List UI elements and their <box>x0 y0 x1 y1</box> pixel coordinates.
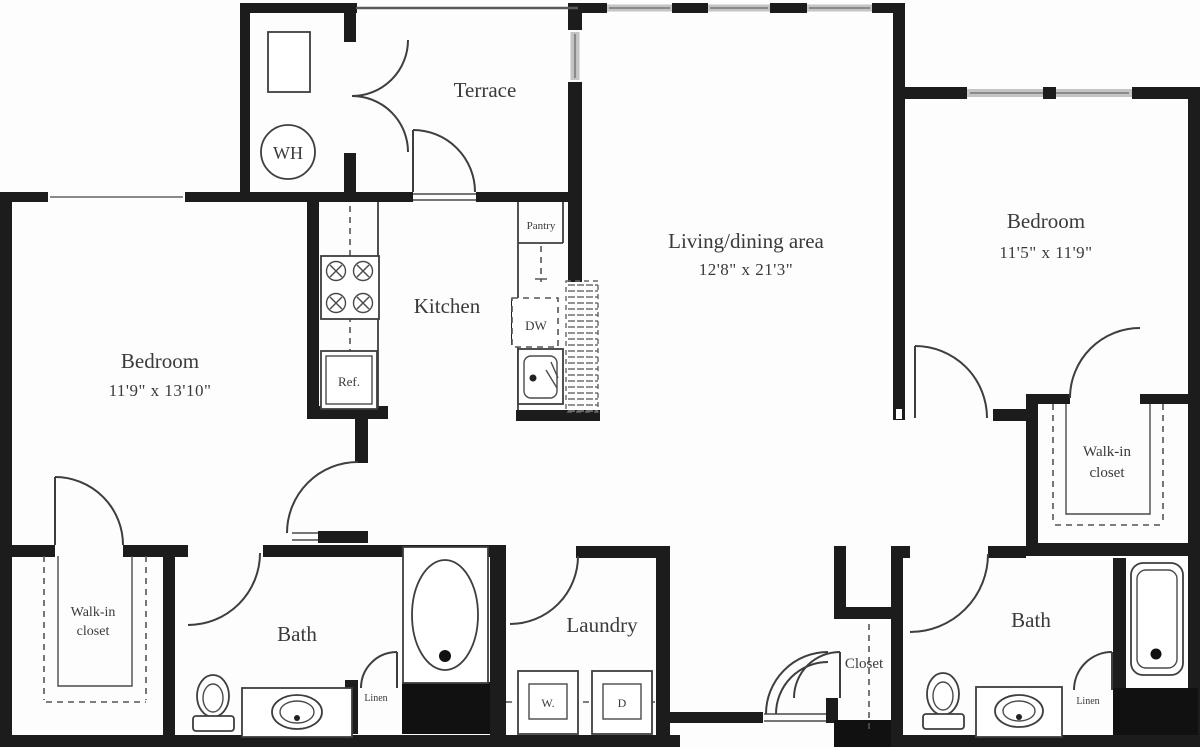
vanity-sink-right-symbol <box>976 687 1062 737</box>
refrigerator-label: Ref. <box>338 374 360 389</box>
hall-closet-label: Closet <box>845 656 884 672</box>
linen-left-label: Linen <box>364 693 387 704</box>
labels: Terrace WH Pantry Kitchen DW Ref. Living… <box>71 78 1132 710</box>
bath-left-label: Bath <box>277 622 317 646</box>
bedroom-left-label: Bedroom <box>121 349 199 373</box>
vanity-sink-left-symbol <box>242 688 352 737</box>
bathtub-left-symbol <box>403 547 488 683</box>
living-dining-label: Living/dining area <box>668 229 824 253</box>
bath-left-door <box>188 553 260 625</box>
terrace-door <box>413 130 476 200</box>
bath-right-label: Bath <box>1011 608 1051 632</box>
bedroom-right-dims: 11'5" x 11'9" <box>999 243 1092 262</box>
pantry-label: Pantry <box>527 220 556 232</box>
utility-panel-symbol <box>268 32 310 92</box>
bathtub-right-symbol <box>1131 563 1183 675</box>
water-heater-label: WH <box>273 143 303 163</box>
bedroom-left-dims: 11'9" x 13'10" <box>109 381 212 400</box>
bedroom-right-label: Bedroom <box>1007 209 1085 233</box>
walkin-right-label-2: closet <box>1090 465 1126 481</box>
linen-right-label: Linen <box>1076 696 1099 707</box>
terrace-side-window <box>568 30 582 82</box>
walkin-closet-left-door <box>55 477 123 545</box>
walkin-left-label-1: Walk-in <box>71 605 116 620</box>
bedroom-right-window <box>967 87 1132 99</box>
walkin-left-label-2: closet <box>77 624 110 639</box>
floor-plan-page: Terrace WH Pantry Kitchen DW Ref. Living… <box>0 0 1200 747</box>
dryer-label: D <box>618 696 627 710</box>
terrace-label: Terrace <box>454 78 517 102</box>
windows <box>48 3 1132 202</box>
walkin-right-label-1: Walk-in <box>1083 444 1131 460</box>
linen-right-door <box>1074 652 1112 690</box>
toilet-right-symbol <box>923 673 964 729</box>
living-top-windows <box>607 3 872 13</box>
kitchen-label: Kitchen <box>414 294 481 318</box>
living-dining-dims: 12'8" x 21'3" <box>699 260 794 279</box>
floor-plan: Terrace WH Pantry Kitchen DW Ref. Living… <box>0 0 1200 747</box>
bedroom-left-door <box>287 462 358 540</box>
storage-double-door <box>352 40 408 152</box>
laundry-label: Laundry <box>566 613 638 637</box>
walkin-closet-right-door <box>1070 328 1140 398</box>
wall-end-slit <box>896 409 902 419</box>
dishwasher-label: DW <box>525 318 547 333</box>
stove-symbol <box>321 256 379 319</box>
toilet-left-symbol <box>193 675 234 731</box>
bedroom-right-door <box>915 346 987 418</box>
bedroom-left-window <box>48 192 185 202</box>
bath-right-door <box>910 554 988 632</box>
kitchen-sink-symbol <box>518 349 563 404</box>
kitchen-peninsula-counter <box>566 281 598 412</box>
linen-left-door <box>361 652 397 688</box>
washer-label: W. <box>541 696 554 710</box>
